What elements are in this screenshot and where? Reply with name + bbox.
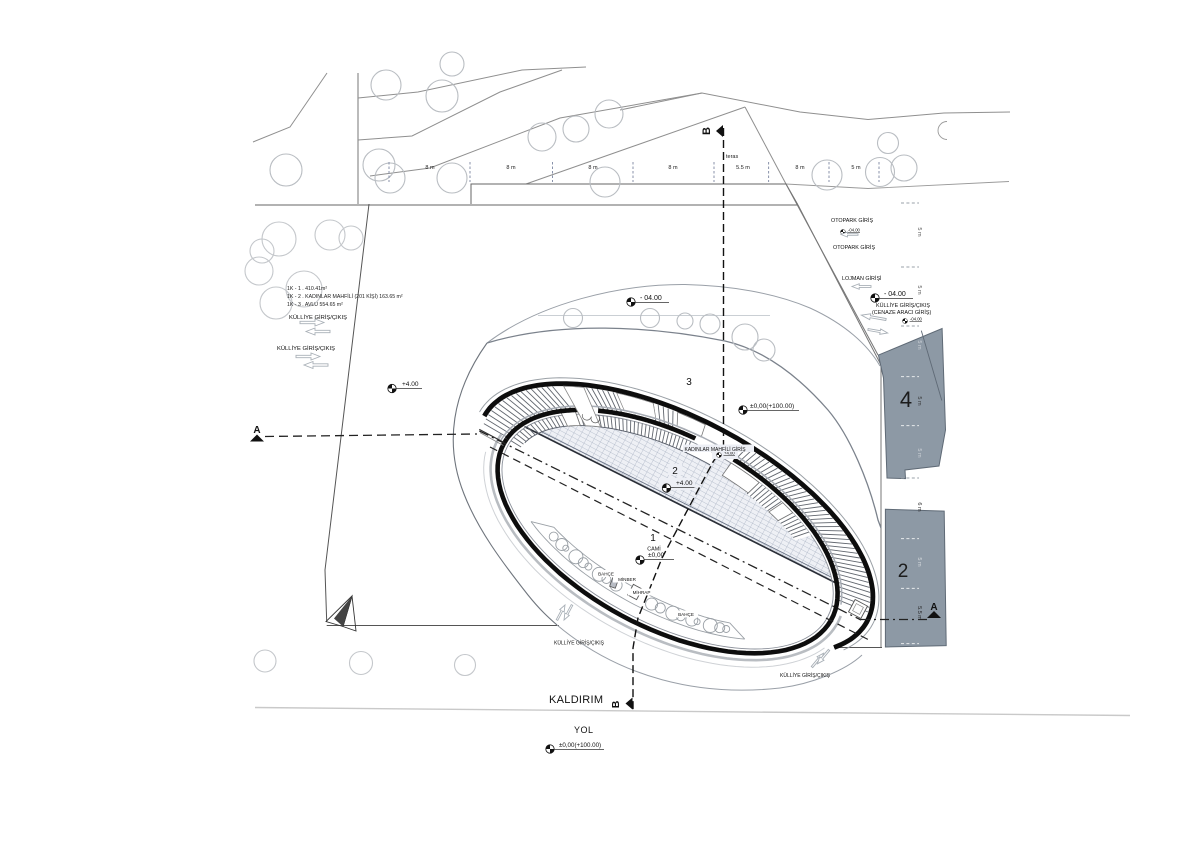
svg-text:±0,00: ±0,00 [648, 552, 665, 559]
svg-text:5 m: 5 m [916, 340, 922, 350]
svg-text:1K - 2 . KADINLAR MAHFİLİ (20: 1K - 2 . KADINLAR MAHFİLİ (201 KİŞİ) 163… [287, 293, 403, 300]
svg-text:-04.00: -04.00 [848, 228, 861, 233]
svg-text:5 m: 5 m [916, 285, 922, 295]
svg-text:6 m: 6 m [916, 502, 922, 512]
svg-text:- 04.00: - 04.00 [640, 295, 662, 302]
svg-text:KÜLLİYE GİRİŞ/ÇIKIŞ: KÜLLİYE GİRİŞ/ÇIKIŞ [876, 302, 930, 309]
svg-text:8 m: 8 m [425, 165, 435, 171]
svg-text:BAHÇE: BAHÇE [598, 572, 614, 577]
svg-text:KÜLLİYE GİRİŞ/ÇIKIŞ: KÜLLİYE GİRİŞ/ÇIKIŞ [780, 672, 831, 679]
svg-text:KÜLLİYE GİRİŞ/ÇIKIŞ: KÜLLİYE GİRİŞ/ÇIKIŞ [277, 345, 335, 352]
svg-text:5.5 m: 5.5 m [736, 165, 750, 171]
svg-text:5 m: 5 m [916, 396, 922, 406]
svg-text:5 m: 5 m [851, 165, 861, 171]
svg-text:1K - 3 . AVLU 554.65 m²: 1K - 3 . AVLU 554.65 m² [287, 302, 343, 308]
svg-text:5 m: 5 m [916, 448, 922, 458]
svg-text:3: 3 [686, 377, 692, 388]
svg-text:YOL: YOL [574, 725, 594, 735]
svg-text:BAHÇE: BAHÇE [678, 612, 694, 617]
svg-text:CAMİ: CAMİ [647, 546, 660, 553]
svg-text:8 m: 8 m [506, 165, 516, 171]
svg-text:+4.00: +4.00 [676, 480, 693, 487]
svg-text:teras: teras [726, 154, 738, 160]
svg-text:MİNBER: MİNBER [618, 576, 637, 582]
svg-text:OTOPARK GİRİŞ: OTOPARK GİRİŞ [833, 244, 875, 251]
svg-text:B: B [701, 127, 713, 135]
svg-text:KÜLLİYE GİRİŞ/ÇIKIŞ: KÜLLİYE GİRİŞ/ÇIKIŞ [554, 640, 605, 647]
svg-text:KÜLLİYE GİRİŞ/ÇIKIŞ: KÜLLİYE GİRİŞ/ÇIKIŞ [289, 314, 347, 321]
svg-text:(CENAZE ARACI GİRİŞ): (CENAZE ARACI GİRİŞ) [872, 309, 932, 316]
svg-text:5.5 m: 5.5 m [916, 606, 922, 620]
svg-text:KALDIRIM: KALDIRIM [549, 694, 603, 706]
svg-text:OTOPARK GİRİŞ: OTOPARK GİRİŞ [831, 217, 873, 224]
svg-text:5 m: 5 m [916, 557, 922, 567]
svg-text:5 m: 5 m [916, 227, 922, 237]
svg-text:2: 2 [672, 466, 678, 477]
svg-text:1: 1 [650, 533, 656, 544]
svg-text:KADINLAR MAHFİLİ GİRİŞ: KADINLAR MAHFİLİ GİRİŞ [685, 446, 747, 453]
svg-text:±0,00(+100.00): ±0,00(+100.00) [750, 403, 794, 410]
svg-text:MİHRAP: MİHRAP [633, 589, 651, 595]
svg-text:-04.00: -04.00 [910, 317, 923, 322]
svg-text:B: B [610, 700, 622, 708]
svg-text:8 m: 8 m [588, 165, 598, 171]
svg-text:2: 2 [898, 561, 909, 582]
svg-text:+4.00: +4.00 [402, 381, 419, 388]
svg-text:A: A [253, 425, 260, 436]
svg-text:LOJMAN GİRİŞİ: LOJMAN GİRİŞİ [842, 275, 882, 282]
svg-text:1K - 1 . 410.41m²: 1K - 1 . 410.41m² [287, 286, 327, 292]
svg-text:±0,00(+100.00): ±0,00(+100.00) [559, 742, 601, 749]
svg-text:8 m: 8 m [668, 165, 678, 171]
svg-text:4: 4 [900, 387, 912, 412]
svg-text:8 m: 8 m [795, 165, 805, 171]
svg-text:- 04.00: - 04.00 [884, 291, 906, 298]
